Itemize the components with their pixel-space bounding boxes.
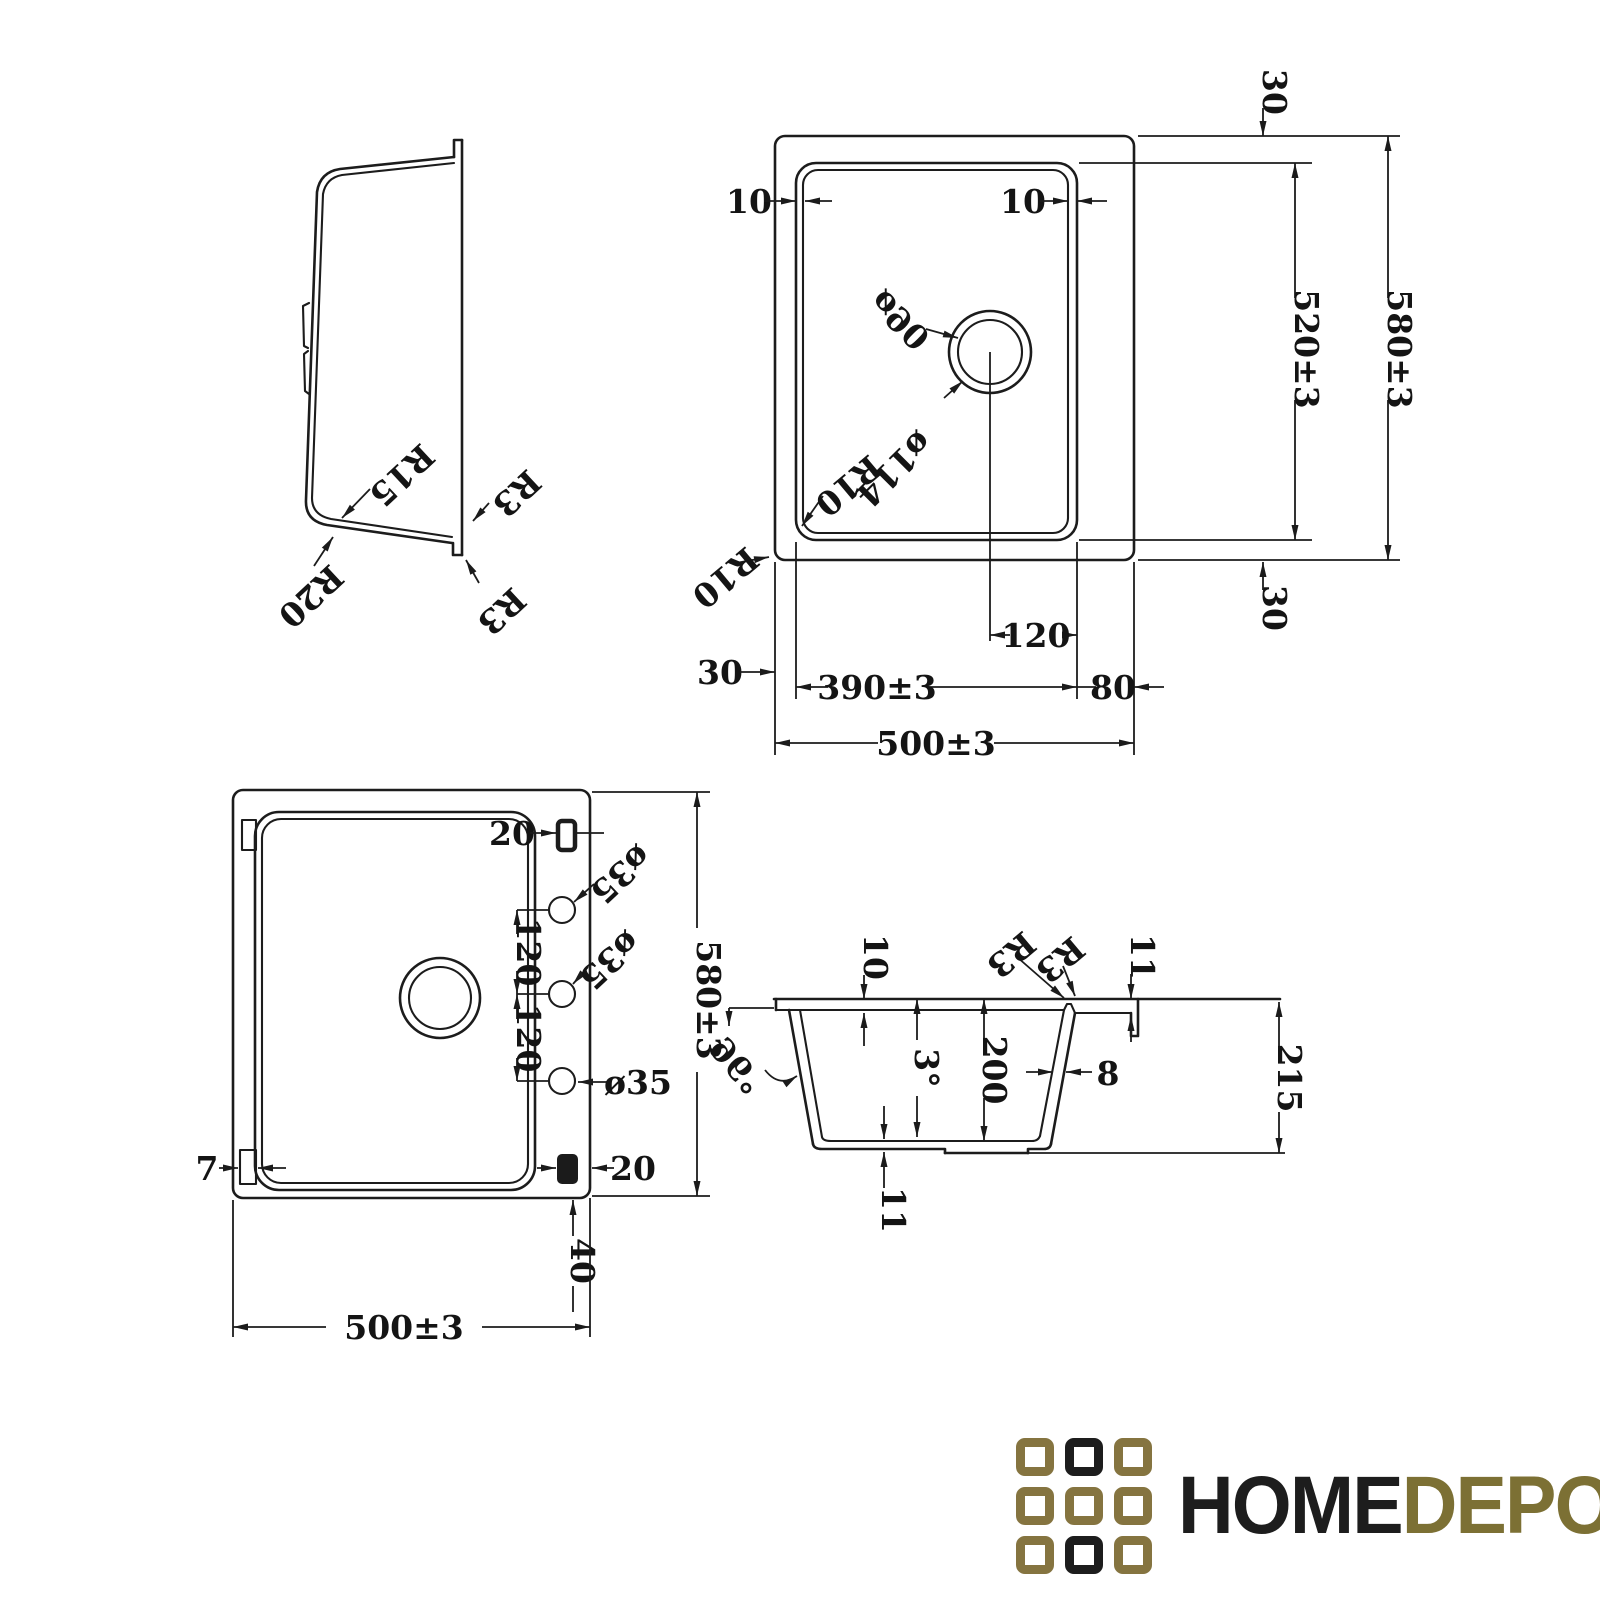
dim-label-r3-inner: R3 bbox=[980, 924, 1044, 986]
side-profile-view: R15 R20 R3 R3 bbox=[271, 140, 549, 643]
slot-top: 20 bbox=[489, 814, 604, 853]
dim-label-580: 580±3 bbox=[1380, 289, 1419, 409]
dim-80: 80 bbox=[1077, 668, 1164, 707]
dim-label-30-bottom: 30 bbox=[1255, 585, 1294, 631]
dim-label-dia35-mid: ø35 bbox=[572, 923, 648, 998]
dim-label-10-section: 10 bbox=[856, 934, 895, 980]
dim-30-bottom: 30 bbox=[1255, 562, 1294, 631]
leader-r10-outer: R10 bbox=[685, 539, 769, 616]
dim-label-30-left: 30 bbox=[697, 653, 743, 692]
dim-label-520: 520±3 bbox=[1287, 289, 1326, 409]
dim-40: 40 bbox=[563, 1200, 602, 1312]
leader-dia35-low: ø35 bbox=[578, 1063, 672, 1102]
logo-text-depo: DEPO bbox=[1402, 1460, 1600, 1551]
logo-grid-cell bbox=[1114, 1438, 1152, 1476]
section-view: 96° 10 3° 200 8 R3 R3 bbox=[702, 924, 1309, 1233]
dim-label-80: 80 bbox=[1090, 668, 1136, 707]
dim-label-120: 120 bbox=[1002, 616, 1071, 655]
dim-580-bottom-view: 580±3 bbox=[689, 792, 728, 1196]
dim-580-top-view: 580±3 bbox=[1380, 136, 1419, 560]
leader-dia35-top: ø35 bbox=[574, 837, 659, 912]
dim-label-20-bottom: 20 bbox=[610, 1149, 656, 1188]
top-view: 10 10 ø90 ø114 R10 R10 bbox=[685, 69, 1419, 763]
logo-grid-cell bbox=[1016, 1487, 1054, 1525]
dim-label-r15: R15 bbox=[362, 436, 442, 515]
dim-label-10-right: 10 bbox=[1000, 182, 1046, 221]
leader-r15: R15 bbox=[342, 436, 442, 518]
dim-label-390: 390±3 bbox=[817, 668, 937, 707]
dim-label-30-top: 30 bbox=[1255, 69, 1294, 115]
dim-label-11-bottom: 11 bbox=[874, 1187, 913, 1233]
dim-215: 215 bbox=[1270, 1002, 1309, 1153]
dim-120-a: 120 bbox=[509, 910, 548, 994]
slot-bottom: 20 bbox=[537, 1149, 656, 1188]
dim-label-215: 215 bbox=[1270, 1044, 1309, 1113]
dim-500-top-view: 500±3 bbox=[775, 724, 1134, 763]
leader-r20: R20 bbox=[271, 537, 351, 636]
leader-r3-lower: R3 bbox=[466, 560, 534, 643]
dim-label-r20: R20 bbox=[271, 557, 351, 636]
dim-label-r3-lower: R3 bbox=[470, 580, 533, 643]
dim-label-120-a: 120 bbox=[509, 918, 548, 987]
sink-technical-drawing: R15 R20 R3 R3 10 10 bbox=[0, 0, 1600, 1600]
dim-label-120-b: 120 bbox=[509, 1004, 548, 1073]
dim-30-top: 30 bbox=[1255, 69, 1294, 136]
dim-10-section: 10 bbox=[856, 934, 895, 1046]
logo-grid-cell bbox=[1065, 1536, 1103, 1574]
logo-grid-cell bbox=[1016, 1536, 1054, 1574]
dim-11-top: 11 bbox=[1123, 934, 1162, 1042]
dim-label-dia90: ø90 bbox=[862, 282, 938, 358]
logo-grid-cell bbox=[1065, 1438, 1103, 1476]
dim-3deg: 3° bbox=[907, 999, 946, 1137]
dim-8: 8 bbox=[1026, 1054, 1119, 1093]
dim-200: 200 bbox=[975, 999, 1014, 1141]
dim-label-40: 40 bbox=[563, 1238, 602, 1284]
dim-10-left: 10 bbox=[726, 182, 832, 221]
dim-label-r10-outer: R10 bbox=[685, 539, 766, 616]
dim-390: 390±3 bbox=[796, 668, 1077, 707]
logo-grid-cell bbox=[1016, 1438, 1054, 1476]
dim-label-500-bottom: 500±3 bbox=[344, 1308, 464, 1347]
dim-30-left: 30 bbox=[697, 653, 775, 692]
dim-label-11-top: 11 bbox=[1123, 934, 1162, 980]
leader-dia35-mid: ø35 bbox=[572, 923, 648, 998]
dim-label-500: 500±3 bbox=[876, 724, 996, 763]
logo-grid-cell bbox=[1065, 1487, 1103, 1525]
logo-text: HOMEDEPO bbox=[1178, 1438, 1600, 1574]
dim-label-3deg: 3° bbox=[907, 1048, 946, 1087]
dim-120-b: 120 bbox=[509, 994, 548, 1081]
dim-label-200: 200 bbox=[975, 1036, 1014, 1105]
dim-10-right: 10 bbox=[1000, 182, 1107, 221]
dim-label-8: 8 bbox=[1097, 1054, 1120, 1093]
logo-grid-cell bbox=[1114, 1487, 1152, 1525]
dim-label-r3-outer: R3 bbox=[1029, 929, 1093, 991]
leader-dia90: ø90 bbox=[862, 282, 958, 358]
leader-r3-outer: R3 bbox=[1029, 929, 1093, 996]
logo-grid bbox=[1016, 1438, 1152, 1574]
dim-500-bottom-view: 500±3 bbox=[233, 1308, 590, 1347]
dim-120-top-view: 120 bbox=[990, 616, 1077, 655]
dim-label-r3-upper: R3 bbox=[485, 462, 548, 525]
bottom-view: 120 120 ø35 ø35 ø35 20 20 bbox=[196, 790, 728, 1347]
dim-label-7: 7 bbox=[196, 1149, 219, 1188]
dim-label-dia35-top: ø35 bbox=[583, 837, 659, 912]
homedepo-logo: HOMEDEPO bbox=[1016, 1438, 1600, 1574]
dim-label-20-top: 20 bbox=[489, 814, 535, 853]
logo-text-home: HOME bbox=[1178, 1460, 1402, 1551]
logo-grid-cell bbox=[1114, 1536, 1152, 1574]
dim-label-dia35-low: ø35 bbox=[604, 1063, 672, 1102]
leader-r3-upper: R3 bbox=[473, 462, 549, 525]
dim-11-bottom: 11 bbox=[874, 1106, 913, 1233]
dim-520: 520±3 bbox=[1287, 163, 1326, 540]
